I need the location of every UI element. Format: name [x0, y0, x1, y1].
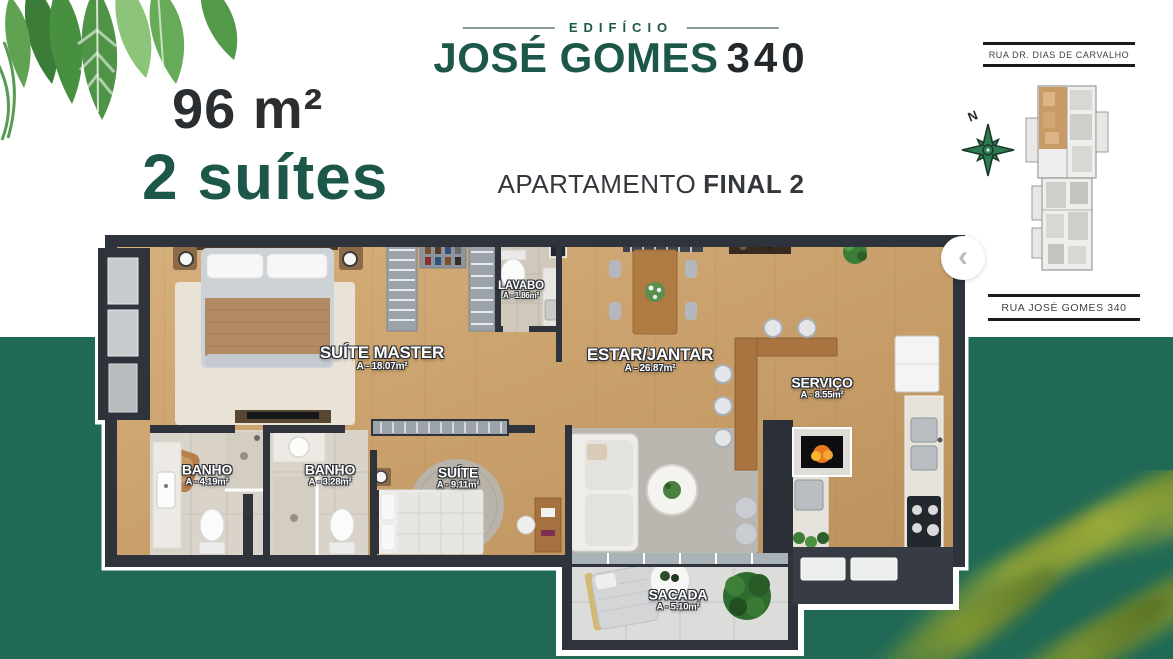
street-top-text: RUA DR. DIAS DE CARVALHO [983, 50, 1135, 60]
street-bottom-line-lower [988, 318, 1140, 321]
room-label-lavabo: LAVABO A - 1.86m² [498, 280, 544, 300]
compass-north-label: N [966, 107, 980, 124]
room-label-servico: SERVIÇO A - 8.55m² [791, 376, 852, 401]
street-top-line-upper [983, 42, 1135, 45]
street-bottom-line-upper [988, 294, 1140, 297]
edificio-right-line [687, 27, 779, 29]
street-top-line-lower [983, 64, 1135, 67]
edificio-row: EDIFÍCIO [463, 20, 779, 35]
room-label-estar-jantar: ESTAR/JANTAR A - 26.87m² [587, 346, 713, 374]
street-bottom-text: RUA JOSÉ GOMES 340 [988, 302, 1140, 314]
suites-highlight: 2 suítes [142, 140, 388, 214]
street-label-bottom: RUA JOSÉ GOMES 340 [988, 294, 1140, 321]
building-number: 340 [727, 34, 809, 81]
building-title: JOSÉ GOMES340 [433, 34, 808, 82]
area-highlight: 96 m² [172, 76, 323, 141]
chevron-left-icon: ‹ [958, 242, 968, 272]
room-label-suite: SUÍTE A - 9.11m² [437, 466, 480, 491]
compass-rose-icon: N [956, 104, 1020, 182]
room-label-suite-master: SUÍTE MASTER A - 18.07m² [320, 344, 444, 372]
room-label-banho-2: BANHO A - 3.28m² [305, 463, 355, 488]
flyer-page: EDIFÍCIO JOSÉ GOMES340 APARTAMENTOFINAL … [0, 0, 1173, 659]
edificio-label: EDIFÍCIO [569, 20, 673, 35]
building-name: JOSÉ GOMES [433, 34, 718, 81]
street-label-top: RUA DR. DIAS DE CARVALHO [983, 42, 1135, 67]
building-key-plan [1018, 82, 1116, 276]
carousel-prev-button[interactable]: ‹ [941, 236, 985, 280]
apartment-subtitle: APARTAMENTOFINAL 2 [498, 169, 805, 200]
room-label-banho-1: BANHO A - 4.19m² [182, 463, 232, 488]
room-label-sacada: SACADA A - 5.10m² [649, 588, 708, 613]
apartment-unit: FINAL 2 [703, 169, 804, 199]
apartment-label: APARTAMENTO [498, 169, 697, 199]
edificio-left-line [463, 27, 555, 29]
